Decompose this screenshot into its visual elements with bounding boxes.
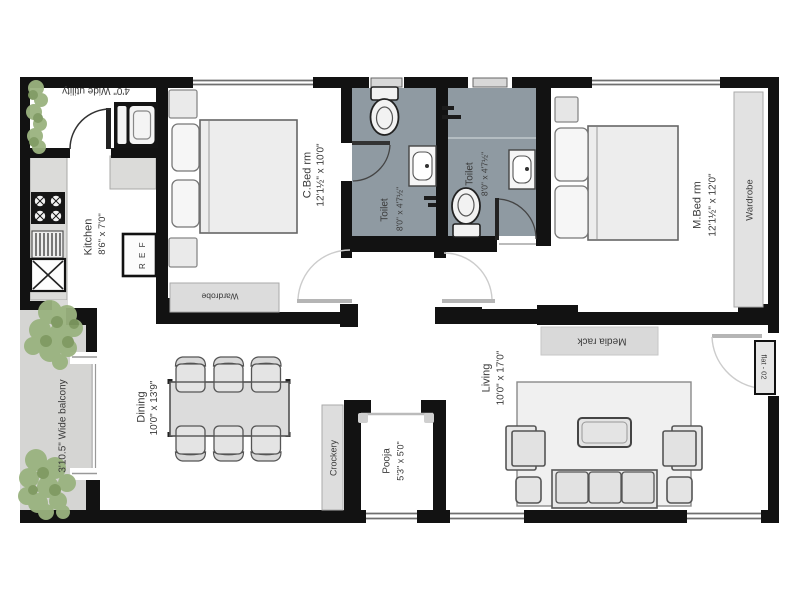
svg-text:Wardrobe: Wardrobe bbox=[201, 292, 238, 302]
svg-text:3'10.5" Wide balcony: 3'10.5" Wide balcony bbox=[58, 379, 69, 472]
svg-text:M.Bed rm: M.Bed rm bbox=[692, 181, 704, 229]
svg-text:4'0" Wide utility: 4'0" Wide utility bbox=[62, 85, 130, 96]
svg-text:8'0" x 4'7½": 8'0" x 4'7½" bbox=[395, 187, 405, 231]
svg-text:Living: Living bbox=[481, 364, 493, 393]
svg-text:Toilet: Toilet bbox=[380, 198, 391, 222]
svg-text:8'6" x 7'0": 8'6" x 7'0" bbox=[97, 213, 108, 255]
svg-text:Pooja: Pooja bbox=[382, 448, 393, 474]
svg-text:Kitchen: Kitchen bbox=[83, 219, 95, 256]
svg-text:Wardrobe: Wardrobe bbox=[745, 179, 756, 220]
svg-text:10'0" x 13'9": 10'0" x 13'9" bbox=[149, 380, 160, 435]
svg-text:8'0" x 4'7½": 8'0" x 4'7½" bbox=[480, 152, 490, 196]
svg-text:R E F: R E F bbox=[138, 241, 147, 269]
svg-text:12'1½" x 10'0": 12'1½" x 10'0" bbox=[316, 143, 327, 207]
svg-text:Crockery: Crockery bbox=[329, 440, 339, 477]
svg-text:Media rack: Media rack bbox=[577, 336, 627, 347]
svg-text:Toilet: Toilet bbox=[465, 162, 476, 186]
svg-text:flat - 02: flat - 02 bbox=[760, 354, 769, 379]
svg-text:10'0" x 17'0": 10'0" x 17'0" bbox=[496, 350, 507, 405]
svg-text:5'3" x 5'0": 5'3" x 5'0" bbox=[396, 441, 406, 480]
svg-text:C.Bed rm: C.Bed rm bbox=[302, 152, 314, 198]
svg-text:Dining: Dining bbox=[136, 391, 148, 422]
svg-text:12'1½" x 12'0": 12'1½" x 12'0" bbox=[708, 173, 719, 237]
